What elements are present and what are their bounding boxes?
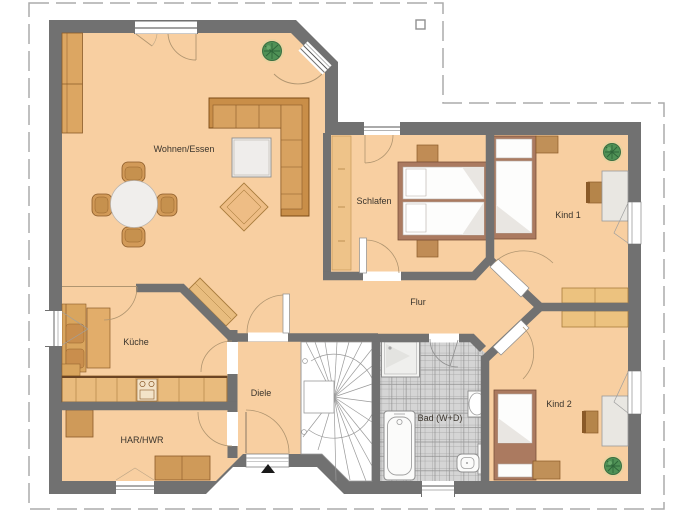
svg-text:Kind 2: Kind 2 (546, 399, 572, 409)
svg-text:Küche: Küche (123, 337, 149, 347)
svg-text:HAR/HWR: HAR/HWR (121, 435, 164, 445)
svg-text:Schlafen: Schlafen (356, 196, 391, 206)
svg-text:Flur: Flur (410, 297, 426, 307)
svg-text:Diele: Diele (251, 388, 272, 398)
svg-text:Wohnen/Essen: Wohnen/Essen (154, 144, 215, 154)
svg-text:Kind 1: Kind 1 (555, 210, 581, 220)
svg-text:Bad (W+D): Bad (W+D) (418, 413, 463, 423)
